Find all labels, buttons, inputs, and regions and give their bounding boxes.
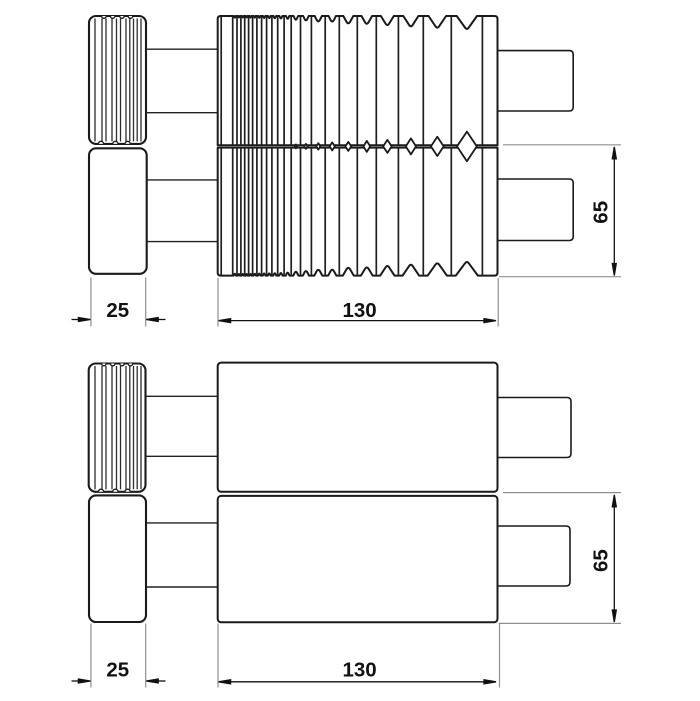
svg-text:25: 25 bbox=[106, 299, 129, 322]
svg-text:25: 25 bbox=[106, 659, 129, 682]
svg-text:130: 130 bbox=[342, 659, 376, 682]
svg-text:130: 130 bbox=[342, 299, 376, 322]
svg-text:65: 65 bbox=[590, 549, 613, 572]
svg-text:65: 65 bbox=[590, 201, 613, 224]
